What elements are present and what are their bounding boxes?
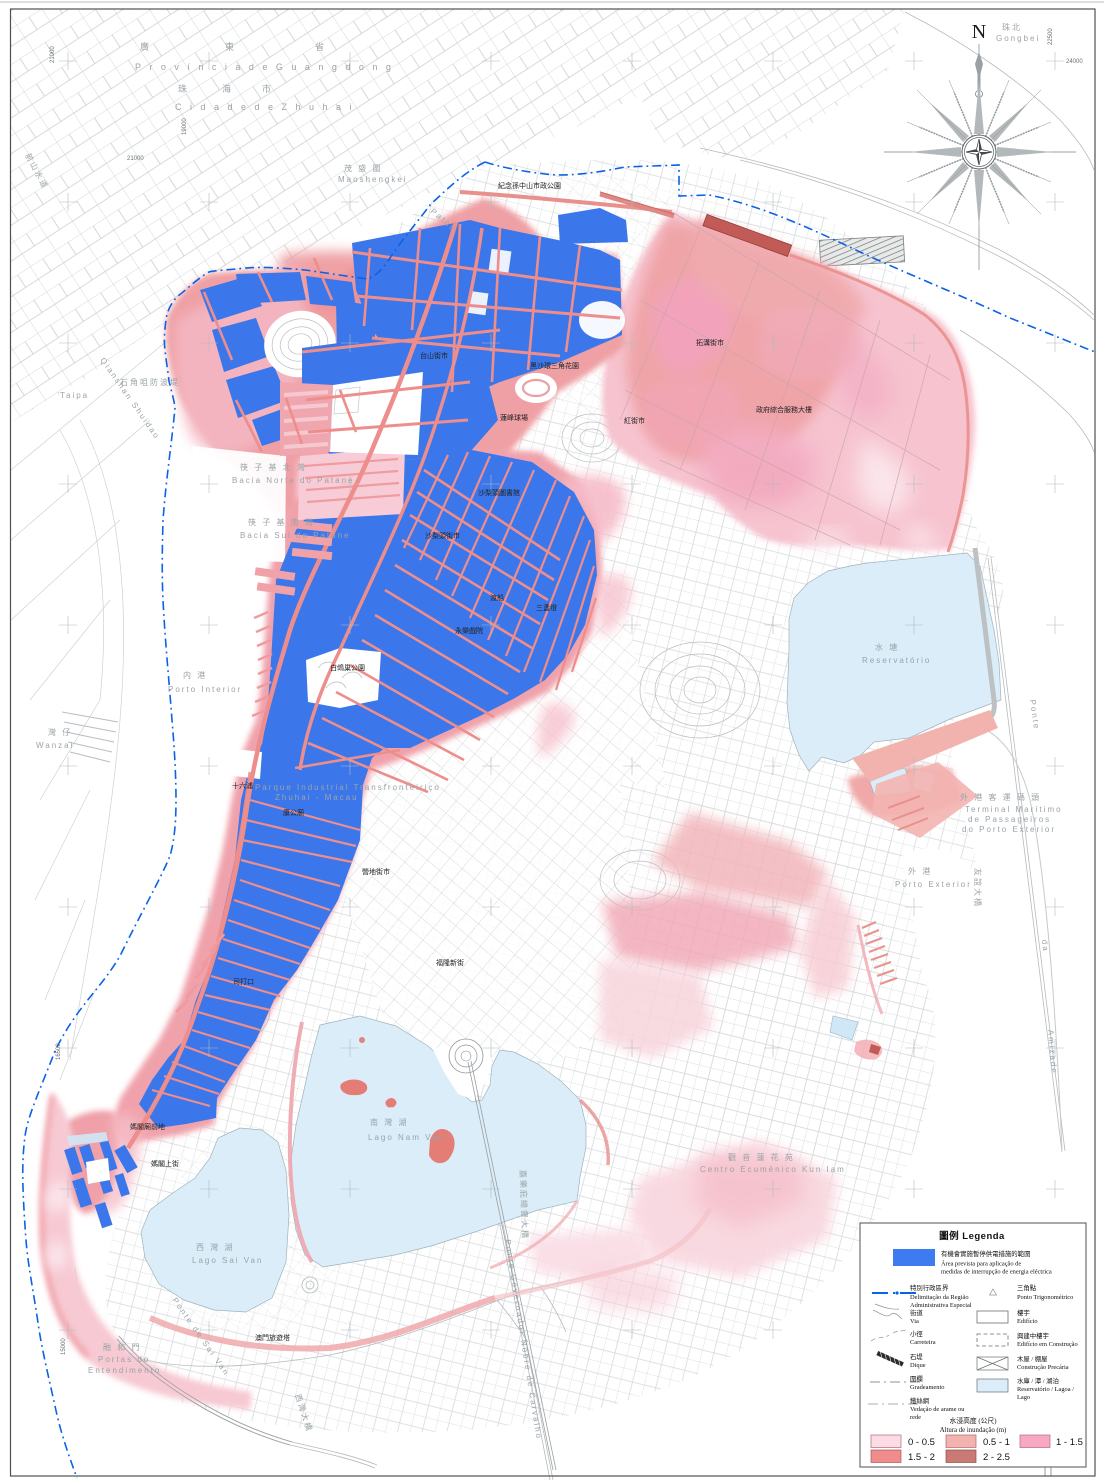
svg-text:木屋 / 棚屋: 木屋 / 棚屋 (1017, 1354, 1048, 1363)
svg-text:友誼大橋: 友誼大橋 (973, 868, 983, 908)
svg-text:水 塘: 水 塘 (875, 642, 899, 652)
svg-text:Terminal Marítimo: Terminal Marítimo (965, 805, 1063, 814)
svg-text:台山街市: 台山街市 (420, 351, 448, 360)
svg-text:Wanzai: Wanzai (36, 741, 74, 750)
svg-text:圍欄: 圍欄 (910, 1374, 923, 1383)
svg-text:Delimitação da Região: Delimitação da Região (910, 1294, 969, 1301)
svg-text:拓溝街市: 拓溝街市 (696, 338, 724, 347)
svg-text:營地街市: 營地街市 (362, 867, 390, 876)
svg-text:de Passageiros: de Passageiros (968, 815, 1051, 824)
svg-text:Lago Sai Van: Lago Sai Van (192, 1256, 263, 1265)
svg-text:16500: 16500 (56, 1043, 62, 1060)
svg-text:紅街市: 紅街市 (624, 416, 645, 425)
svg-text:24000: 24000 (1066, 59, 1083, 65)
svg-text:Lago Nam Van: Lago Nam Van (368, 1133, 445, 1142)
svg-text:Lago: Lago (1017, 1394, 1030, 1401)
svg-text:Portas do: Portas do (98, 1355, 150, 1364)
svg-text:Gongbei: Gongbei (996, 34, 1040, 43)
svg-text:1.5 - 2: 1.5 - 2 (908, 1452, 935, 1463)
svg-text:福隆新街: 福隆新街 (436, 958, 464, 967)
svg-text:市: 市 (262, 83, 274, 94)
svg-text:珠: 珠 (178, 83, 190, 94)
svg-text:黑沙環三角花園: 黑沙環三角花園 (530, 361, 579, 370)
svg-text:外 港 客 運 碼 頭: 外 港 客 運 碼 頭 (960, 792, 1041, 802)
svg-text:Dique: Dique (910, 1362, 926, 1369)
svg-text:21000: 21000 (50, 46, 56, 63)
svg-text:筷 子 基 北 灣: 筷 子 基 北 灣 (240, 462, 307, 472)
svg-text:東: 東 (225, 41, 237, 52)
svg-text:Zhuhai - Macau: Zhuhai - Macau (275, 793, 359, 802)
svg-text:Gradeamento: Gradeamento (910, 1384, 944, 1391)
svg-text:蓮峰球場: 蓮峰球場 (500, 413, 528, 422)
svg-text:媽閣上街: 媽閣上街 (151, 1159, 179, 1168)
svg-text:da: da (1040, 939, 1050, 953)
svg-text:樓宇: 樓宇 (1017, 1308, 1030, 1317)
svg-text:Parque Industrial Transfrontei: Parque Industrial Transfronteiriço (255, 783, 441, 792)
svg-text:19000: 19000 (182, 118, 188, 135)
svg-text:Porto Exterior: Porto Exterior (895, 880, 972, 889)
svg-text:外 港: 外 港 (908, 866, 932, 876)
svg-text:永樂戲院: 永樂戲院 (455, 626, 483, 635)
svg-text:十六浦: 十六浦 (232, 781, 253, 790)
svg-text:Reservatório / Lagoa /: Reservatório / Lagoa / (1017, 1386, 1074, 1393)
svg-text:融 和 門: 融 和 門 (103, 1342, 141, 1352)
svg-text:康公廟: 康公廟 (283, 808, 304, 817)
svg-text:15000: 15000 (61, 1338, 67, 1355)
svg-text:0 - 0.5: 0 - 0.5 (908, 1437, 935, 1448)
svg-text:海: 海 (222, 83, 234, 94)
svg-text:石角咀防波堤: 石角咀防波堤 (120, 377, 180, 387)
svg-text:do Porto Exterior: do Porto Exterior (962, 825, 1056, 834)
svg-text:政府綜合服務大樓: 政府綜合服務大樓 (756, 405, 812, 414)
svg-text:C i d a d e d e Z h u h a: C i d a d e d e Z h u h a i (175, 102, 355, 112)
svg-text:圖例 Legenda: 圖例 Legenda (939, 1230, 1005, 1242)
svg-text:三角點: 三角點 (1017, 1283, 1037, 1292)
svg-text:Vedação de arame ou: Vedação de arame ou (910, 1406, 965, 1413)
svg-text:内 港: 内 港 (183, 670, 207, 680)
svg-text:渡船: 渡船 (490, 593, 504, 602)
svg-text:媽閣廟前地: 媽閣廟前地 (130, 1122, 165, 1131)
svg-text:Reservatório: Reservatório (862, 656, 931, 665)
svg-text:2 - 2.5: 2 - 2.5 (983, 1452, 1010, 1463)
svg-text:Administrativa Especial: Administrativa Especial (910, 1302, 972, 1309)
svg-text:Taipa: Taipa (60, 391, 89, 400)
svg-text:rede: rede (910, 1414, 921, 1421)
svg-text:廣: 廣 (140, 41, 152, 52)
svg-text:三盞燈: 三盞燈 (536, 603, 557, 612)
svg-text:鐵絲網: 鐵絲網 (910, 1396, 929, 1405)
svg-text:筷 子 基 南 灣: 筷 子 基 南 灣 (248, 517, 315, 527)
svg-text:石堤: 石堤 (910, 1352, 923, 1361)
svg-text:Maoshengkei: Maoshengkei (338, 175, 408, 184)
svg-text:省: 省 (315, 41, 327, 52)
svg-text:水浸高度 (公尺): 水浸高度 (公尺) (949, 1416, 996, 1425)
svg-text:珠北: 珠北 (1002, 22, 1022, 32)
svg-text:興建中樓宇: 興建中樓宇 (1017, 1331, 1049, 1340)
svg-text:22500: 22500 (1048, 28, 1054, 45)
svg-text:Centro Ecuménico Kun Iam: Centro Ecuménico Kun Iam (700, 1165, 846, 1174)
svg-text:沙梨頭街市: 沙梨頭街市 (425, 531, 460, 540)
svg-text:Edifício: Edifício (1017, 1318, 1038, 1325)
svg-text:灣 仔: 灣 仔 (48, 727, 72, 737)
svg-text:21000: 21000 (127, 156, 144, 162)
svg-text:紀念孫中山市政公園: 紀念孫中山市政公園 (498, 181, 561, 190)
svg-text:特別行政區界: 特別行政區界 (910, 1283, 949, 1292)
svg-text:小徑: 小徑 (910, 1329, 923, 1338)
svg-text:沙梨頭圖書館: 沙梨頭圖書館 (478, 488, 520, 497)
svg-text:有機會實施暫停供電措施的範圍: 有機會實施暫停供電措施的範圍 (941, 1249, 1030, 1258)
svg-text:澳門旅遊塔: 澳門旅遊塔 (255, 1333, 290, 1342)
svg-text:Área prevista para aplicação d: Área prevista para aplicação de (941, 1260, 1021, 1268)
svg-text:Altura de inundação (m): Altura de inundação (m) (940, 1427, 1007, 1434)
svg-text:Porto Interior: Porto Interior (168, 685, 242, 694)
svg-text:1 - 1.5: 1 - 1.5 (1056, 1437, 1083, 1448)
svg-text:司打口: 司打口 (233, 977, 254, 986)
svg-text:街道: 街道 (910, 1308, 923, 1317)
svg-text:Via: Via (910, 1318, 919, 1325)
svg-text:觀 音 蓮 花 苑: 觀 音 蓮 花 苑 (728, 1152, 795, 1162)
svg-text:Entendimento: Entendimento (88, 1366, 161, 1375)
svg-text:南 灣 湖: 南 灣 湖 (370, 1117, 408, 1127)
svg-text:Ponto Trigonométrico: Ponto Trigonométrico (1017, 1294, 1073, 1301)
svg-text:茂 盛 圍: 茂 盛 圍 (344, 163, 382, 173)
svg-text:Bacia Norte do Patane: Bacia Norte do Patane (232, 476, 355, 485)
svg-text:P r o v í n c i a d e G u: P r o v í n c i a d e G u a n g d o n g (135, 62, 394, 72)
svg-text:Edifício em Construção: Edifício em Construção (1017, 1341, 1078, 1348)
svg-text:N: N (972, 21, 986, 43)
svg-text:Bacia Sul do Patane: Bacia Sul do Patane (240, 531, 351, 540)
svg-text:白鴿巢公園: 白鴿巢公園 (330, 663, 365, 672)
svg-text:0.5 - 1: 0.5 - 1 (983, 1437, 1010, 1448)
svg-text:medidas de interrupção de ener: medidas de interrupção de energia eléctr… (941, 1269, 1052, 1276)
svg-text:水庫 / 潭 / 湖泊: 水庫 / 潭 / 湖泊 (1017, 1376, 1059, 1385)
svg-text:西 灣 湖: 西 灣 湖 (196, 1242, 234, 1252)
svg-text:Carreteira: Carreteira (910, 1339, 936, 1346)
svg-text:Construção Precária: Construção Precária (1017, 1364, 1069, 1371)
